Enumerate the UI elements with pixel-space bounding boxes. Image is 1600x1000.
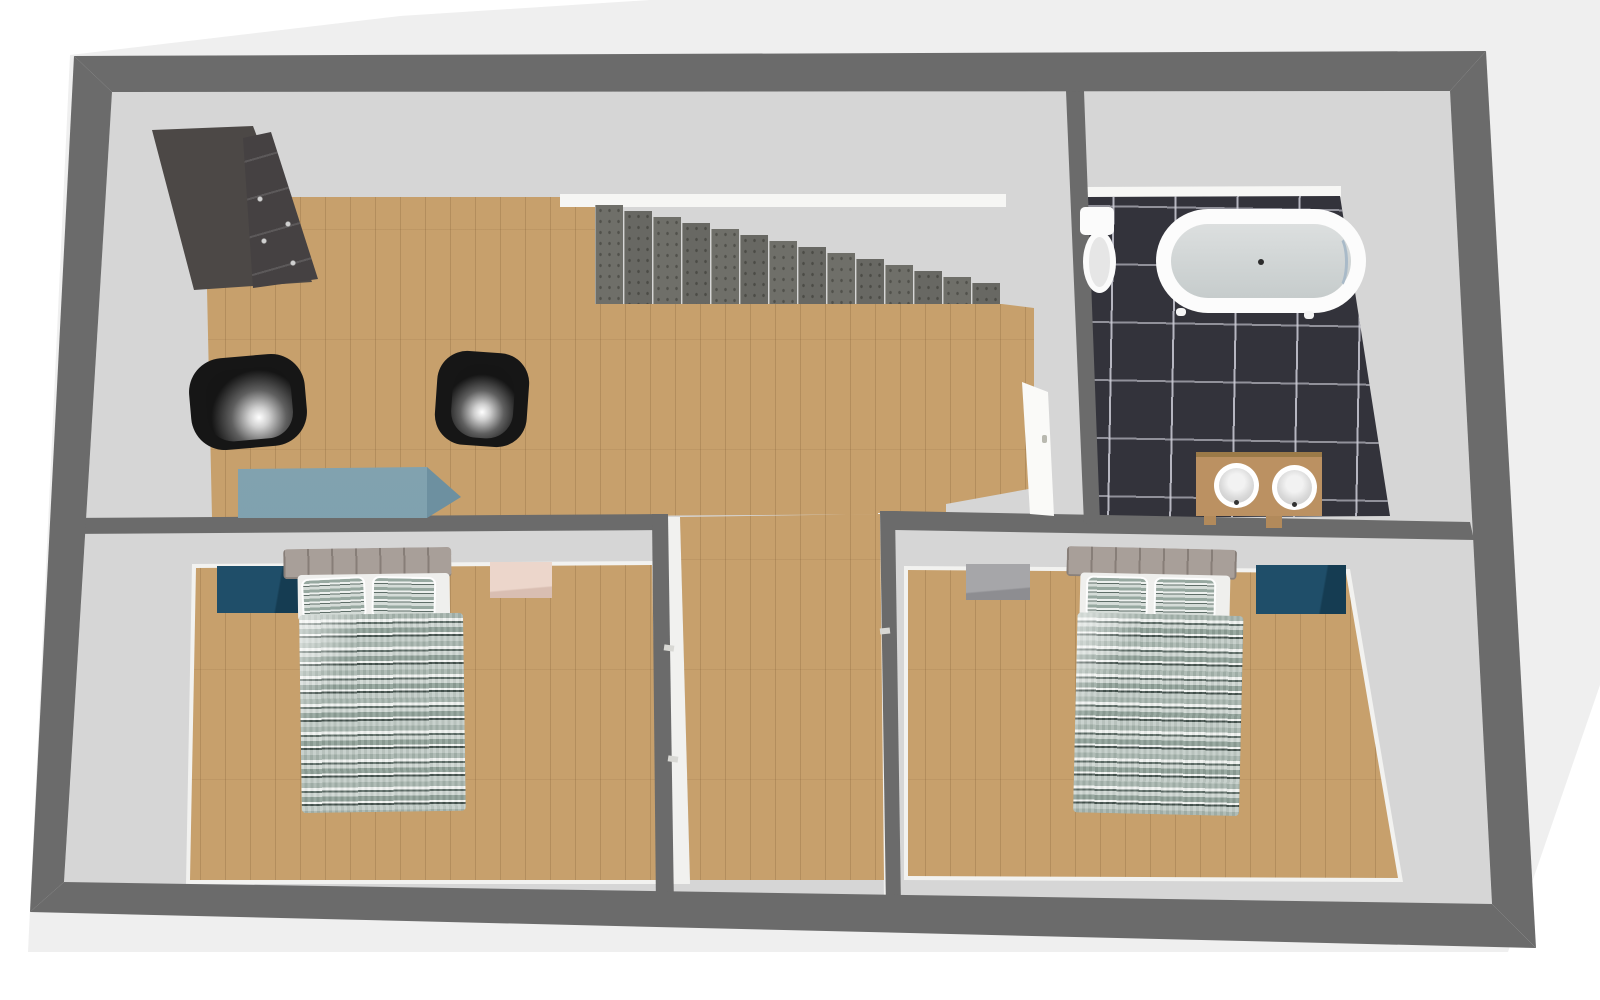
sink-bowl bbox=[1219, 468, 1254, 503]
stair-step bbox=[827, 253, 855, 304]
vanity-leg bbox=[1204, 516, 1216, 525]
stair-step bbox=[972, 283, 1000, 304]
door-jamb-mark bbox=[880, 627, 891, 634]
bathtub-drain bbox=[1258, 259, 1264, 265]
floorplan-canvas bbox=[0, 0, 1600, 1000]
bathtub-foot bbox=[1176, 308, 1186, 316]
faucet-dot bbox=[1292, 502, 1297, 507]
stair-step bbox=[885, 265, 913, 304]
armchair-seat bbox=[449, 362, 516, 440]
duvet bbox=[1073, 612, 1243, 816]
stair-step bbox=[798, 247, 826, 304]
sink-left[interactable] bbox=[1214, 463, 1259, 508]
armchair-left[interactable] bbox=[186, 351, 310, 453]
toilet-bowl-inner bbox=[1089, 237, 1110, 287]
nightstand-right[interactable] bbox=[1256, 565, 1346, 614]
pillow bbox=[1155, 579, 1214, 618]
toilet[interactable] bbox=[1083, 231, 1116, 293]
door-jamb-mark bbox=[668, 755, 679, 762]
duvet bbox=[299, 613, 466, 813]
staircase[interactable] bbox=[595, 205, 1001, 304]
side-table-gray[interactable] bbox=[966, 564, 1030, 600]
stair-step bbox=[653, 217, 681, 304]
bed-right[interactable] bbox=[1059, 546, 1243, 818]
stair-step bbox=[682, 223, 710, 304]
armchair-right[interactable] bbox=[433, 349, 531, 449]
pillow bbox=[303, 578, 365, 619]
pillow bbox=[1087, 578, 1146, 617]
sink-right[interactable] bbox=[1272, 465, 1317, 510]
sink-bowl bbox=[1277, 470, 1312, 505]
stair-step bbox=[914, 271, 942, 304]
armchair-seat bbox=[203, 364, 295, 443]
side-table-pink[interactable] bbox=[490, 562, 552, 598]
stair-step bbox=[856, 259, 884, 304]
stair-step bbox=[740, 235, 768, 304]
stair-step bbox=[624, 211, 652, 304]
pillow bbox=[373, 578, 434, 617]
stair-step bbox=[769, 241, 797, 304]
bed-left[interactable] bbox=[283, 547, 467, 815]
bathtub-foot bbox=[1304, 311, 1314, 319]
vanity-leg bbox=[1266, 516, 1282, 528]
door-jamb-mark bbox=[664, 644, 675, 651]
stair-step bbox=[711, 229, 739, 304]
door-handle bbox=[1042, 435, 1047, 443]
stair-step bbox=[595, 205, 623, 304]
bathtub[interactable] bbox=[1156, 209, 1366, 313]
stair-step bbox=[943, 277, 971, 304]
bathtub-faucet bbox=[1328, 235, 1348, 289]
faucet-dot bbox=[1234, 500, 1239, 505]
